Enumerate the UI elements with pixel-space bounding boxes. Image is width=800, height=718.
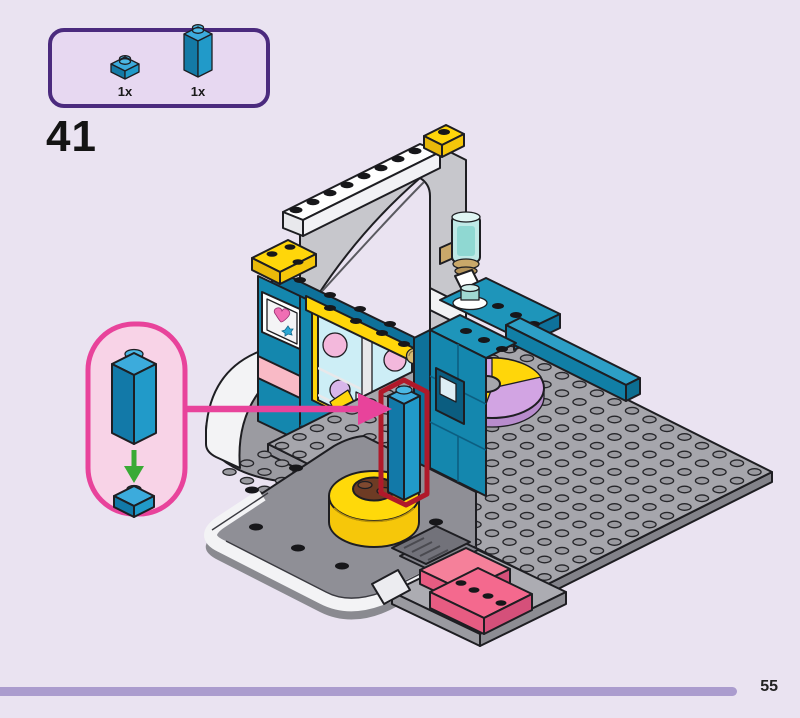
callout-brick bbox=[112, 350, 156, 445]
progress-bar bbox=[0, 687, 737, 696]
placement-brick bbox=[381, 380, 427, 505]
page-number: 55 bbox=[760, 678, 778, 696]
callout-bubble bbox=[88, 324, 185, 517]
assembly-illustration bbox=[0, 0, 800, 718]
